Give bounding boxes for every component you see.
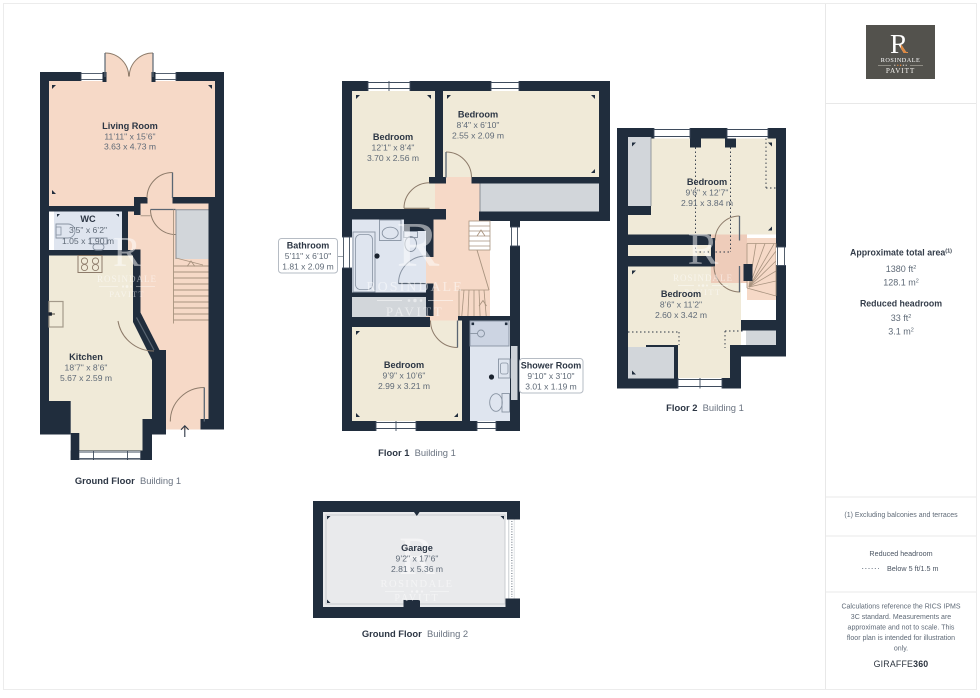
svg-text:18’7" x 8’6": 18’7" x 8’6" xyxy=(65,363,108,373)
svg-text:Below 5 ft/1.5 m: Below 5 ft/1.5 m xyxy=(887,564,939,573)
svg-text:3.1 m2: 3.1 m2 xyxy=(888,327,914,337)
svg-text:Shower Room: Shower Room xyxy=(521,361,582,371)
svg-text:2.99 x 3.21 m: 2.99 x 3.21 m xyxy=(378,381,430,391)
svg-text:Bedroom: Bedroom xyxy=(661,289,701,299)
svg-text:approximate and not to scale.: approximate and not to scale. This xyxy=(848,625,955,632)
svg-text:Floor 1 Building 1: Floor 1 Building 1 xyxy=(378,447,456,458)
svg-text:Living Room: Living Room xyxy=(102,121,158,131)
svg-text:(1) Excluding balconies and te: (1) Excluding balconies and terraces xyxy=(844,512,958,519)
svg-text:128.1 m2: 128.1 m2 xyxy=(883,278,919,288)
svg-text:1.05 x 1.90 m: 1.05 x 1.90 m xyxy=(62,236,114,246)
svg-text:GIRAFFE360: GIRAFFE360 xyxy=(874,659,929,669)
svg-text:PAVITT: PAVITT xyxy=(886,67,915,75)
svg-text:Calculations reference the RIC: Calculations reference the RICS IPMS xyxy=(841,604,960,611)
svg-text:8’6" x 11’2": 8’6" x 11’2" xyxy=(660,300,702,310)
svg-text:Bathroom: Bathroom xyxy=(287,241,330,251)
svg-text:3.01 x 1.19 m: 3.01 x 1.19 m xyxy=(525,382,577,392)
svg-text:33 ft2: 33 ft2 xyxy=(891,313,912,323)
svg-text:9’9" x 10’6": 9’9" x 10’6" xyxy=(383,371,426,381)
svg-text:5’11" x 6’10": 5’11" x 6’10" xyxy=(285,251,332,261)
svg-text:2.60 x 3.42 m: 2.60 x 3.42 m xyxy=(655,310,707,320)
svg-text:2.81 x 5.36 m: 2.81 x 5.36 m xyxy=(391,564,443,574)
svg-text:ROSINDALE: ROSINDALE xyxy=(97,274,157,284)
svg-text:Reduced headroom: Reduced headroom xyxy=(860,299,942,309)
svg-text:3.63 x 4.73 m: 3.63 x 4.73 m xyxy=(104,142,156,152)
svg-text:ROSINDALE: ROSINDALE xyxy=(673,273,733,283)
svg-text:PAVITT: PAVITT xyxy=(386,304,444,319)
svg-text:PAVITT: PAVITT xyxy=(394,593,439,604)
svg-text:Ground Floor Building 2: Ground Floor Building 2 xyxy=(362,628,468,639)
svg-text:Bedroom: Bedroom xyxy=(687,177,727,187)
svg-text:11’11" x 15’6": 11’11" x 15’6" xyxy=(104,132,155,142)
svg-text:Garage: Garage xyxy=(401,543,433,553)
svg-text:Bedroom: Bedroom xyxy=(384,360,424,370)
svg-text:2.55 x 2.09 m: 2.55 x 2.09 m xyxy=(452,131,504,141)
svg-text:3.70 x 2.56 m: 3.70 x 2.56 m xyxy=(367,153,419,163)
svg-text:9’2" x 17’6": 9’2" x 17’6" xyxy=(396,554,439,564)
svg-text:2.91 x 3.84 m: 2.91 x 3.84 m xyxy=(681,198,733,208)
svg-text:9’10" x 3’10": 9’10" x 3’10" xyxy=(527,371,574,381)
svg-text:floor plan is intended for ill: floor plan is intended for illustration xyxy=(847,635,955,642)
svg-text:3’5" x 6’2": 3’5" x 6’2" xyxy=(69,225,107,235)
svg-text:Bedroom: Bedroom xyxy=(373,132,413,142)
svg-text:R: R xyxy=(890,29,908,59)
svg-text:12’1" x 8’4": 12’1" x 8’4" xyxy=(372,143,415,153)
svg-text:Floor 2 Building 1: Floor 2 Building 1 xyxy=(666,402,744,413)
svg-text:Ground Floor Building 1: Ground Floor Building 1 xyxy=(75,475,181,486)
svg-text:PAVITT: PAVITT xyxy=(109,289,145,299)
svg-text:R: R xyxy=(397,209,440,280)
svg-text:9’6" x 12’7": 9’6" x 12’7" xyxy=(686,188,729,198)
svg-text:R: R xyxy=(113,230,141,276)
svg-text:1.81 x 2.09 m: 1.81 x 2.09 m xyxy=(282,262,334,272)
svg-text:Kitchen: Kitchen xyxy=(69,352,103,362)
svg-text:ROSINDALE: ROSINDALE xyxy=(381,579,454,590)
svg-text:Approximate total area(1): Approximate total area(1) xyxy=(850,248,952,258)
svg-text:R: R xyxy=(688,223,719,274)
svg-text:WC: WC xyxy=(80,214,96,224)
svg-text:only.: only. xyxy=(894,646,908,653)
svg-text:1380 ft2: 1380 ft2 xyxy=(886,264,917,274)
svg-text:Bedroom: Bedroom xyxy=(458,110,498,120)
svg-text:Reduced headroom: Reduced headroom xyxy=(869,549,932,558)
svg-text:3C standard. Measurements are: 3C standard. Measurements are xyxy=(851,614,951,621)
svg-text:ROSINDALE: ROSINDALE xyxy=(881,57,921,64)
svg-text:5.67 x 2.59 m: 5.67 x 2.59 m xyxy=(60,373,112,383)
svg-text:ROSINDALE: ROSINDALE xyxy=(366,280,463,295)
svg-text:8’4" x 6’10": 8’4" x 6’10" xyxy=(457,120,500,130)
